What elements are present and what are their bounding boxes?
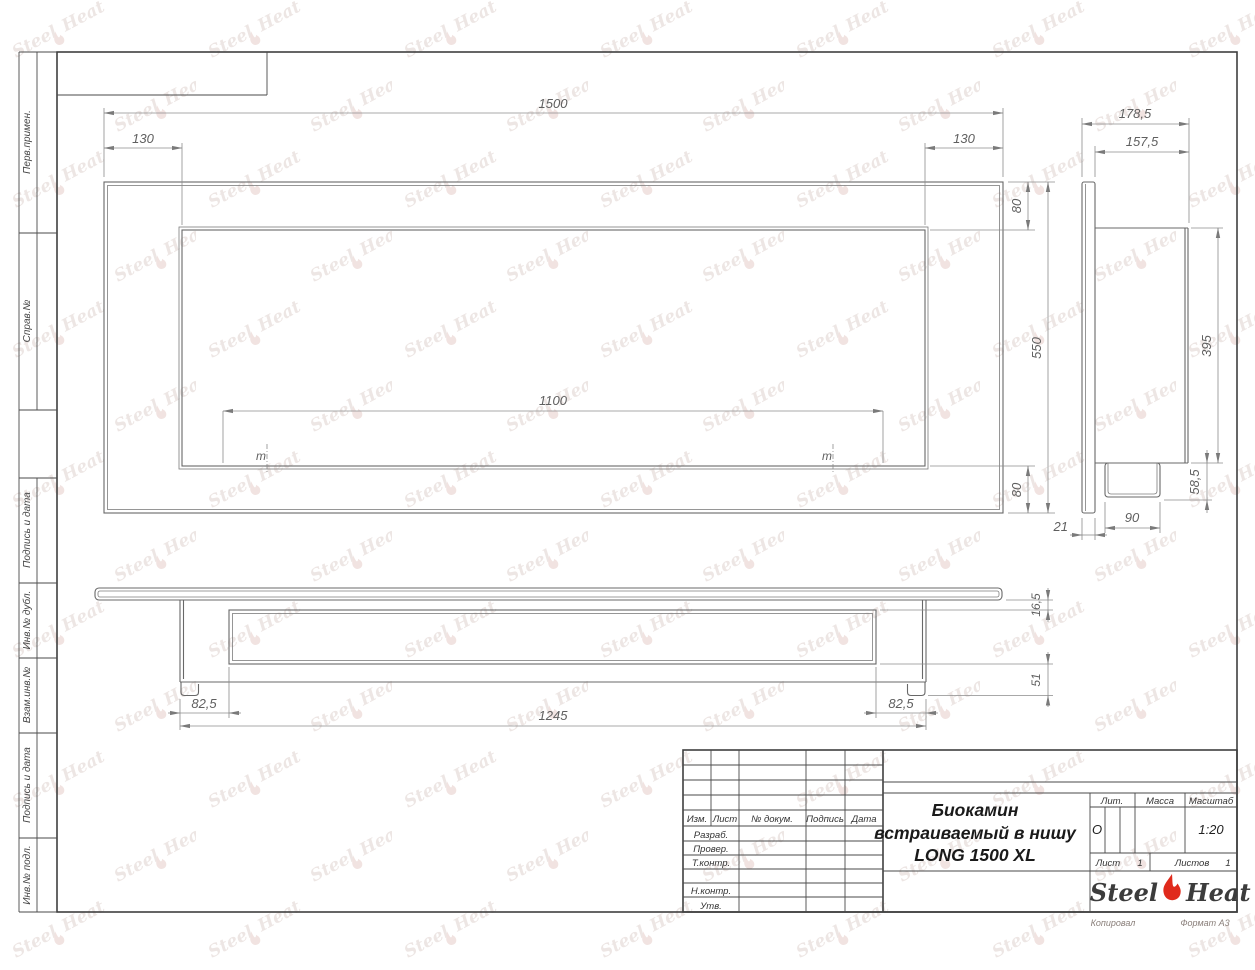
svg-text:550: 550: [1029, 336, 1044, 358]
row-tcontrol: Т.контр.: [692, 858, 730, 869]
rev-header-doc: № докум.: [751, 814, 793, 825]
logo-heat-text: Heat: [1185, 878, 1251, 907]
sheet-value: 1: [1137, 858, 1142, 869]
drawing-page: Steel Heat Steel Heat Перв.примен. Справ…: [0, 0, 1255, 970]
svg-text:58,5: 58,5: [1187, 469, 1202, 495]
svg-text:82,5: 82,5: [888, 696, 914, 711]
svg-text:90: 90: [1125, 510, 1140, 525]
doc-title-line3: LONG 1500 XL: [914, 845, 1036, 865]
strip-label-vzam-inv: Взам.инв.№: [22, 667, 33, 723]
rev-header-date: Дата: [850, 814, 876, 825]
row-ncontrol: Н.контр.: [691, 886, 731, 897]
strip-label-sprav-no: Справ.№: [22, 299, 33, 342]
row-developed: Разраб.: [694, 830, 728, 841]
svg-text:51: 51: [1029, 673, 1043, 686]
sheet-label: Лист: [1095, 858, 1121, 869]
strip-label-podpis-data-1: Подпись и дата: [22, 492, 33, 568]
doc-title-line2: встраиваемый в нишу: [874, 823, 1077, 843]
row-checked: Провер.: [693, 844, 728, 855]
footer-copied-label: Копировал: [1091, 918, 1136, 928]
strip-label-perv-primen: Перв.примен.: [22, 110, 33, 174]
scale-header: Масштаб: [1189, 796, 1234, 807]
svg-text:1500: 1500: [539, 96, 569, 111]
svg-text:m: m: [256, 449, 266, 463]
svg-text:395: 395: [1199, 334, 1214, 356]
svg-text:80: 80: [1009, 198, 1024, 213]
svg-text:82,5: 82,5: [191, 696, 217, 711]
svg-text:157,5: 157,5: [1126, 134, 1159, 149]
doc-title-line1: Биокамин: [932, 800, 1019, 820]
svg-text:1245: 1245: [539, 708, 569, 723]
mass-header: Масса: [1146, 796, 1174, 807]
lit-header: Лит.: [1100, 796, 1123, 807]
technical-drawing: Steel Heat Steel Heat Перв.примен. Справ…: [0, 0, 1255, 970]
strip-label-inv-podl: Инв.№ подл.: [22, 845, 33, 904]
strip-label-podpis-data-2: Подпись и дата: [22, 747, 33, 823]
svg-text:178,5: 178,5: [1119, 106, 1152, 121]
row-approved: Утв.: [699, 901, 722, 912]
svg-text:1100: 1100: [539, 393, 568, 408]
scale-value: 1:20: [1198, 822, 1224, 837]
rev-header-sign: Подпись: [806, 814, 844, 825]
svg-text:21: 21: [1053, 519, 1068, 534]
footer-format-label: Формат А3: [1180, 918, 1229, 928]
lit-value: О: [1092, 822, 1102, 837]
svg-text:m: m: [822, 449, 832, 463]
svg-text:130: 130: [953, 131, 975, 146]
rev-header-izm: Изм.: [687, 814, 707, 825]
svg-text:16,5: 16,5: [1029, 593, 1043, 617]
svg-text:130: 130: [132, 131, 154, 146]
svg-text:80: 80: [1009, 482, 1024, 497]
strip-label-inv-dubl: Инв.№ дубл.: [21, 591, 33, 650]
logo-steel-text: Steel: [1090, 878, 1158, 907]
rev-header-list: Лист: [712, 814, 738, 825]
sheets-label: Листов: [1174, 858, 1210, 869]
sheets-value: 1: [1225, 858, 1230, 869]
